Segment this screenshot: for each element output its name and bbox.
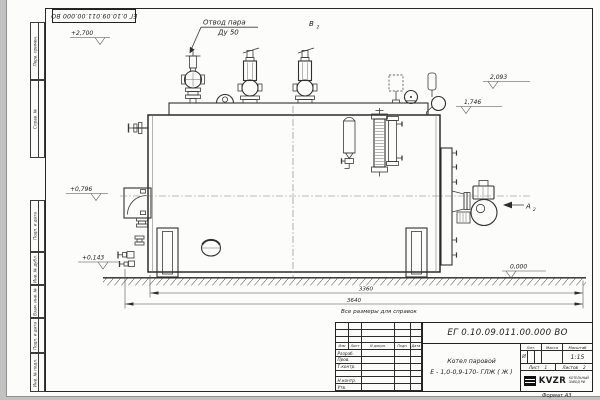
safety-valve-1: [238, 48, 262, 103]
view-b-marker: В 2: [309, 20, 320, 31]
tb-lit-value: И: [521, 351, 528, 364]
svg-text:+0,143: +0,143: [82, 255, 104, 262]
sheets-value: 2: [583, 365, 586, 370]
svg-text:2: 2: [317, 25, 320, 31]
rear-connections: [118, 123, 151, 268]
elevation-mark-0143: +0,143: [78, 255, 120, 270]
tb-role-utv: Утв.: [336, 384, 362, 391]
tb-empty-cell: [411, 384, 422, 391]
steam-outlet-valve: [182, 51, 205, 104]
safety-valve-2: [293, 48, 317, 103]
tb-role-nkontr: Н.контр.: [336, 377, 362, 384]
svg-text:1,746: 1,746: [464, 99, 481, 106]
elevation-mark-2093: 2,093: [483, 74, 530, 89]
sheet-value: 1: [544, 365, 547, 370]
tb-empty-cell: [362, 371, 395, 378]
tb-lit-header: Лит.: [521, 344, 542, 351]
svg-text:2: 2: [533, 207, 536, 213]
tb-empty-cell: [349, 330, 362, 337]
sensor-capsule: [428, 73, 436, 90]
svg-text:0,000: 0,000: [510, 264, 527, 271]
elevation-mark-2700: +2,700: [70, 30, 110, 45]
elevation-mark-1746: 1,746: [456, 99, 502, 114]
svg-text:А: А: [525, 203, 531, 211]
elevation-mark-0796: +0,796: [66, 186, 108, 201]
dimension-inner-length: 3360: [359, 287, 374, 293]
svg-text:+2,700: +2,700: [71, 30, 93, 37]
dimension-overall-length: 3640: [347, 298, 362, 304]
tb-empty-cell: [411, 330, 422, 337]
kvzr-logo-icon: [524, 376, 536, 386]
tb-header-ndoc: N докум.: [362, 343, 395, 350]
tb-empty-cell: [535, 351, 542, 364]
ground: [103, 278, 586, 286]
dome-instruments: [389, 73, 446, 115]
tb-empty-cell: [362, 384, 395, 391]
drawing-viewport: ЕГ 0.10.09.011.00.000 ВО Перв. примен. С…: [0, 0, 600, 400]
tb-empty-cell: [395, 384, 411, 391]
tb-scale-header: Масштаб: [563, 344, 592, 351]
title-block-revision-table: ИзмЛистN докум.Подп.Дата Разраб. Пров. Т…: [336, 323, 423, 391]
tb-empty-cell: [395, 330, 411, 337]
tb-empty-cell: [411, 357, 422, 364]
water-level-gauge: [342, 108, 403, 177]
steam-outlet-callout: Отвод пара Ду 50: [190, 19, 259, 54]
tb-mass-header: Масса: [542, 344, 563, 351]
tb-header-podp: Подп.: [395, 343, 411, 350]
product-name-line1: Котел паровой: [447, 357, 496, 368]
manhole: [202, 240, 221, 256]
title-block: ИзмЛистN докум.Подп.Дата Разраб. Пров. Т…: [335, 322, 593, 392]
tb-empty-cell: [395, 323, 411, 330]
tb-sheet-cell: Лист1: [521, 364, 556, 371]
tb-empty-cell: [411, 350, 422, 357]
tb-role-tkontr: Т.контр.: [336, 364, 362, 371]
reference-note: Все размеры для справок: [341, 309, 417, 315]
svg-text:В: В: [309, 20, 314, 28]
tb-empty-cell: [362, 377, 395, 384]
support-legs: [157, 228, 427, 277]
tb-empty-cell: [362, 357, 395, 364]
tb-empty-cell: [528, 351, 535, 364]
tb-empty-cell: [349, 323, 362, 330]
tb-empty-cell: [336, 330, 349, 337]
tb-empty-cell: [411, 377, 422, 384]
tb-empty-cell: [411, 323, 422, 330]
product-name-line2: Е - 1,0-0,9-170- ГЛЖ ( Ж ): [430, 368, 512, 379]
product-name: Котел паровой Е - 1,0-0,9-170- ГЛЖ ( Ж ): [423, 344, 521, 391]
tb-role-prov: Пров.: [336, 357, 362, 364]
tb-empty-cell: [411, 371, 422, 378]
tb-header-izm: Изм: [336, 343, 349, 350]
tb-empty-cell: [362, 323, 395, 330]
tb-empty-cell: [336, 337, 349, 344]
tb-empty-cell: [349, 337, 362, 344]
tb-empty-cell: [362, 337, 395, 344]
brand-subtitle-line2: ЗАВОД РФ: [569, 381, 589, 385]
tb-role-razrab: Разраб.: [336, 350, 362, 357]
tb-empty-cell: [395, 350, 411, 357]
tb-role-blank: [336, 371, 362, 378]
tb-empty-cell: [411, 364, 422, 371]
tb-empty-cell: [411, 337, 422, 344]
format-note: Формат А3: [542, 393, 572, 399]
dimension-lines: 3360 3640: [125, 269, 583, 309]
tb-header-data: Дата: [411, 343, 422, 350]
svg-text:Отвод пара: Отвод пара: [203, 19, 246, 27]
sheet-label: Лист: [529, 365, 540, 370]
svg-text:+0,796: +0,796: [70, 186, 92, 193]
tb-empty-cell: [395, 371, 411, 378]
siphon-loop: [432, 97, 446, 111]
svg-text:2,093: 2,093: [490, 74, 507, 81]
sheets-label: Листов: [562, 365, 578, 370]
tb-scale-value: 1:15: [563, 351, 592, 364]
tb-empty-cell: [395, 377, 411, 384]
elevation-mark-0000: 0,000: [502, 264, 546, 279]
tb-empty-cell: [362, 364, 395, 371]
view-a-marker: А 2: [503, 202, 536, 213]
tb-empty-cell: [362, 330, 395, 337]
tb-empty-cell: [395, 364, 411, 371]
tb-empty-cell: [336, 323, 349, 330]
tb-empty-cell: [362, 350, 395, 357]
brand-name: KVZR: [539, 376, 566, 386]
tb-sheets-cell: Листов2: [556, 364, 592, 371]
burner-fan-scroll: [471, 200, 497, 226]
top-platform: [169, 103, 428, 115]
company-cell: KVZR КОТЕЛЬНЫЙ ЗАВОД РФ: [521, 371, 592, 391]
tb-mass-value: [542, 351, 563, 364]
tb-header-list: Лист: [349, 343, 362, 350]
tb-empty-cell: [395, 357, 411, 364]
gauge-glass-rungs: [375, 123, 384, 165]
title-block-doc-number: ЕГ 0.10.09.011.00.000 ВО: [423, 323, 592, 344]
front-plate-bolts: [452, 150, 457, 257]
lifting-lug: [217, 95, 234, 104]
front-plate-and-burner: [441, 148, 497, 265]
svg-text:Ду 50: Ду 50: [217, 29, 239, 37]
burner-motor: [473, 186, 494, 199]
tb-empty-cell: [395, 337, 411, 344]
